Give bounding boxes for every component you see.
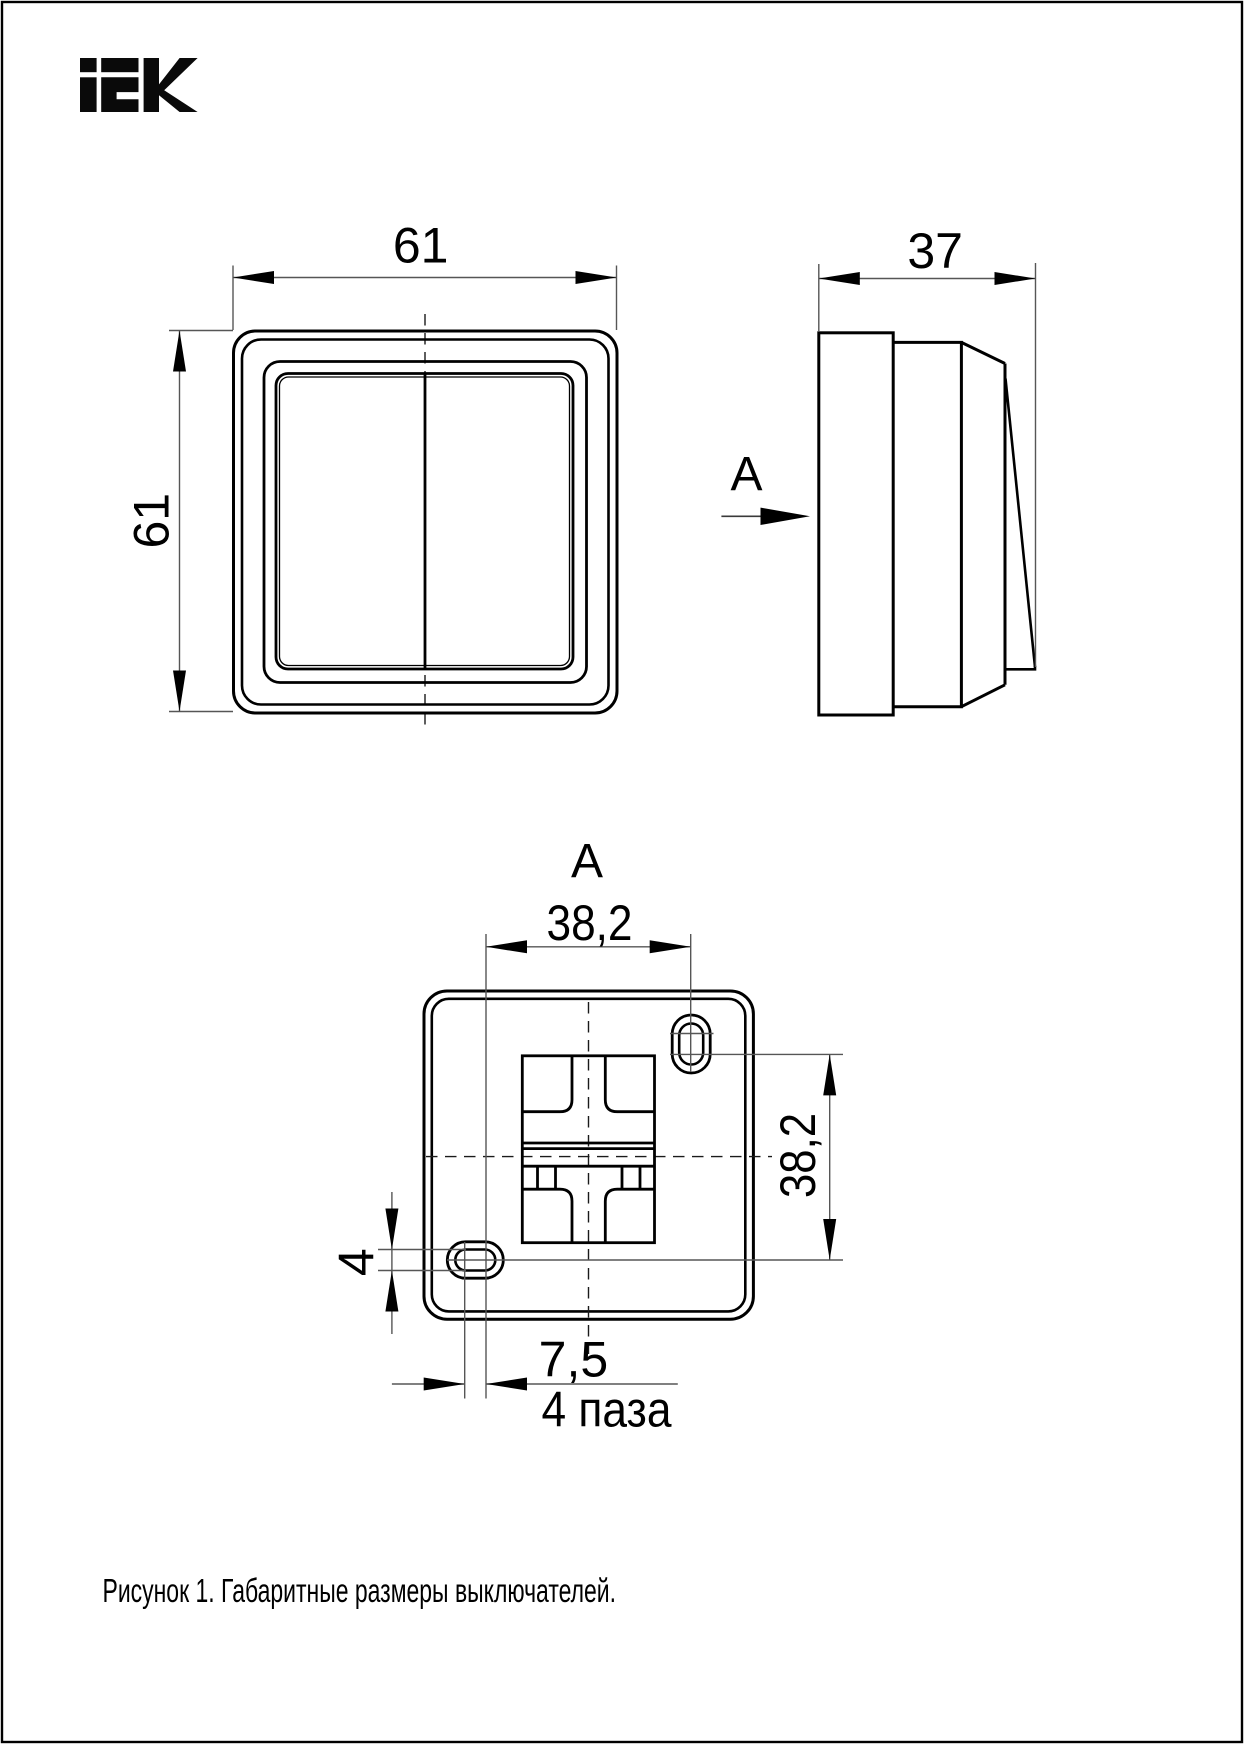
svg-text:38,2: 38,2 bbox=[770, 1113, 826, 1198]
svg-text:38,2: 38,2 bbox=[547, 895, 633, 951]
svg-text:61: 61 bbox=[393, 218, 449, 274]
svg-text:A: A bbox=[730, 448, 762, 501]
svg-text:4: 4 bbox=[329, 1248, 385, 1276]
svg-text:61: 61 bbox=[124, 493, 180, 549]
svg-text:7,5: 7,5 bbox=[539, 1331, 609, 1387]
svg-text:4 паза: 4 паза bbox=[542, 1382, 672, 1438]
svg-text:37: 37 bbox=[907, 223, 963, 279]
svg-text:A: A bbox=[571, 835, 603, 888]
svg-text:Рисунок 1. Габаритные размеры: Рисунок 1. Габаритные размеры выключател… bbox=[103, 1573, 617, 1610]
